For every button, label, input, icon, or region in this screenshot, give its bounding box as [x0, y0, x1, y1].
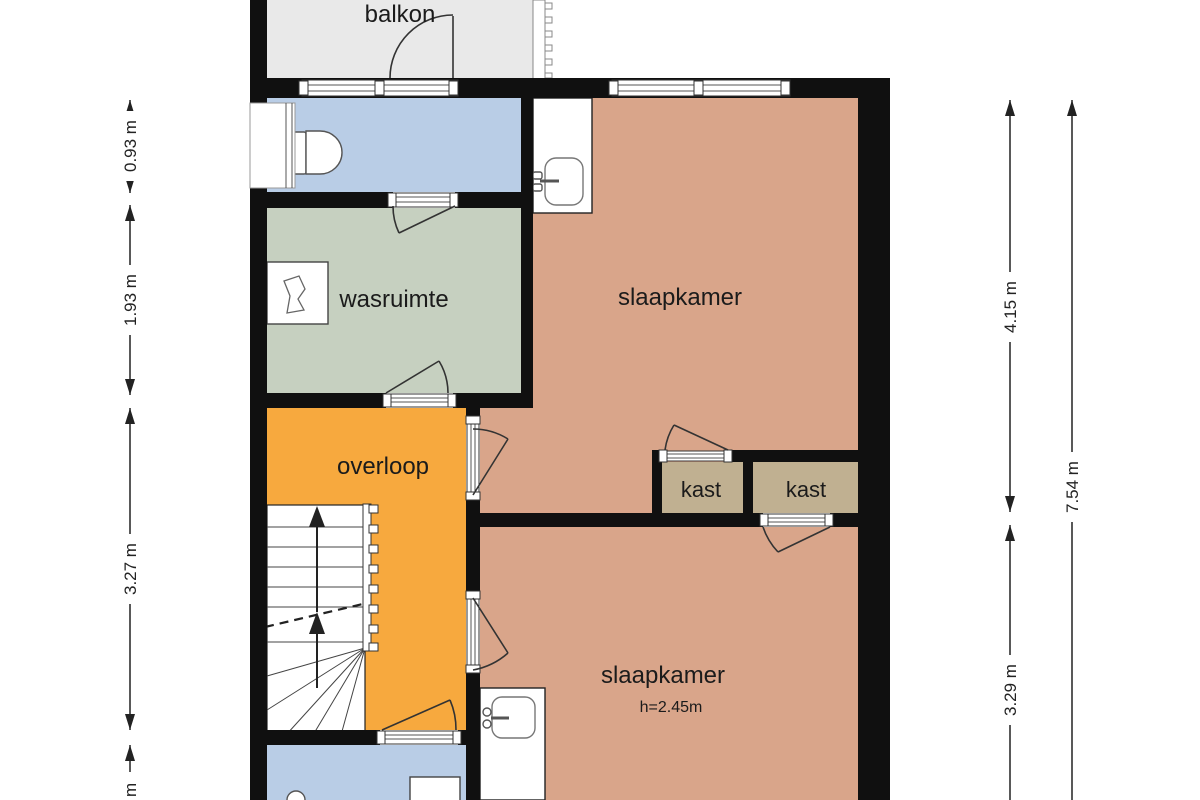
- dim-label: 3.27 m: [121, 543, 140, 595]
- dim-label: 4.15 m: [1001, 281, 1020, 333]
- floor-plan: balkon wasruimte slaapkamer overloop kas…: [0, 0, 1200, 800]
- room-label-kast-rechts: kast: [786, 477, 826, 502]
- dim-label: 7.54 m: [1063, 461, 1082, 513]
- room-label-overloop: overloop: [337, 453, 429, 480]
- dim-label: 3.29 m: [1001, 664, 1020, 716]
- dimension-left-1-93: 1.93 m: [118, 205, 142, 395]
- washing-machine-icon: [267, 262, 328, 324]
- toilet-icon: [292, 131, 342, 174]
- dimension-left-3-27: 3.27 m: [118, 408, 142, 730]
- room-label-kast-links: kast: [681, 477, 721, 502]
- dim-label: 0.93 m: [121, 120, 140, 172]
- dimension-right-7-54: 7.54 m: [1060, 100, 1084, 800]
- dimension-left-0-93: 0.93 m: [118, 100, 142, 193]
- dim-label: 1 m: [121, 783, 140, 800]
- staircase: [265, 504, 378, 735]
- dimension-left-1m: 1 m: [118, 745, 142, 800]
- room-slaapkamer-boven-ext: [480, 408, 533, 513]
- balcony-railing: [533, 0, 552, 79]
- washbasin-unit-top: [533, 98, 592, 213]
- washbasin-unit-bottom: [480, 688, 545, 800]
- dimension-right-3-29: 3.29 m: [998, 525, 1022, 800]
- dim-label: 1.93 m: [121, 274, 140, 326]
- window-top-left: [299, 80, 458, 96]
- room-height-note: h=2.45m: [640, 699, 703, 716]
- window-top-right: [609, 80, 790, 96]
- shower-tray-partial: [410, 777, 460, 800]
- room-label-balkon: balkon: [365, 1, 436, 28]
- room-label-slaapkamer-onder: slaapkamer: [601, 662, 725, 689]
- window-bathroom-left: [250, 103, 295, 188]
- room-label-slaapkamer-boven: slaapkamer: [618, 284, 742, 311]
- dimension-right-4-15: 4.15 m: [998, 100, 1022, 512]
- room-label-wasruimte: wasruimte: [338, 286, 448, 313]
- floor-plan-svg: balkon wasruimte slaapkamer overloop kas…: [0, 0, 1200, 800]
